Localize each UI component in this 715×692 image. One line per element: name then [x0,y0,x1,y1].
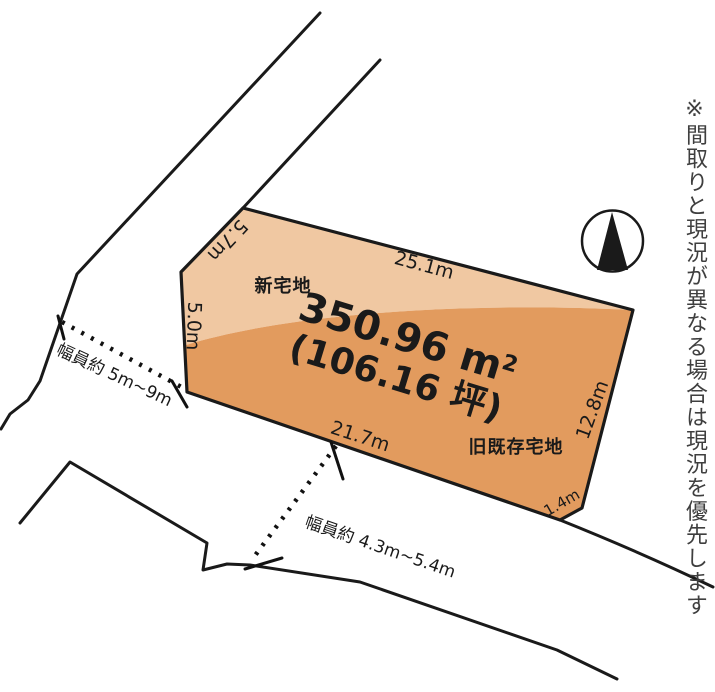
label-old-lot: 旧既存宅地 [469,439,564,457]
road-upper-left-east-edge [243,60,380,208]
disclaimer-note: ※間取りと現況が異なる場合は現況を優先します [662,97,710,627]
measure-dotted-bottom-road [251,446,336,561]
dimension-left: 5.0m [183,301,204,350]
north-arrow-icon [582,211,643,272]
land-plot-diagram: 5.7m 5.0m 25.1m 12.8m 1.4m 21.7m 新宅地 旧既存… [0,0,715,692]
